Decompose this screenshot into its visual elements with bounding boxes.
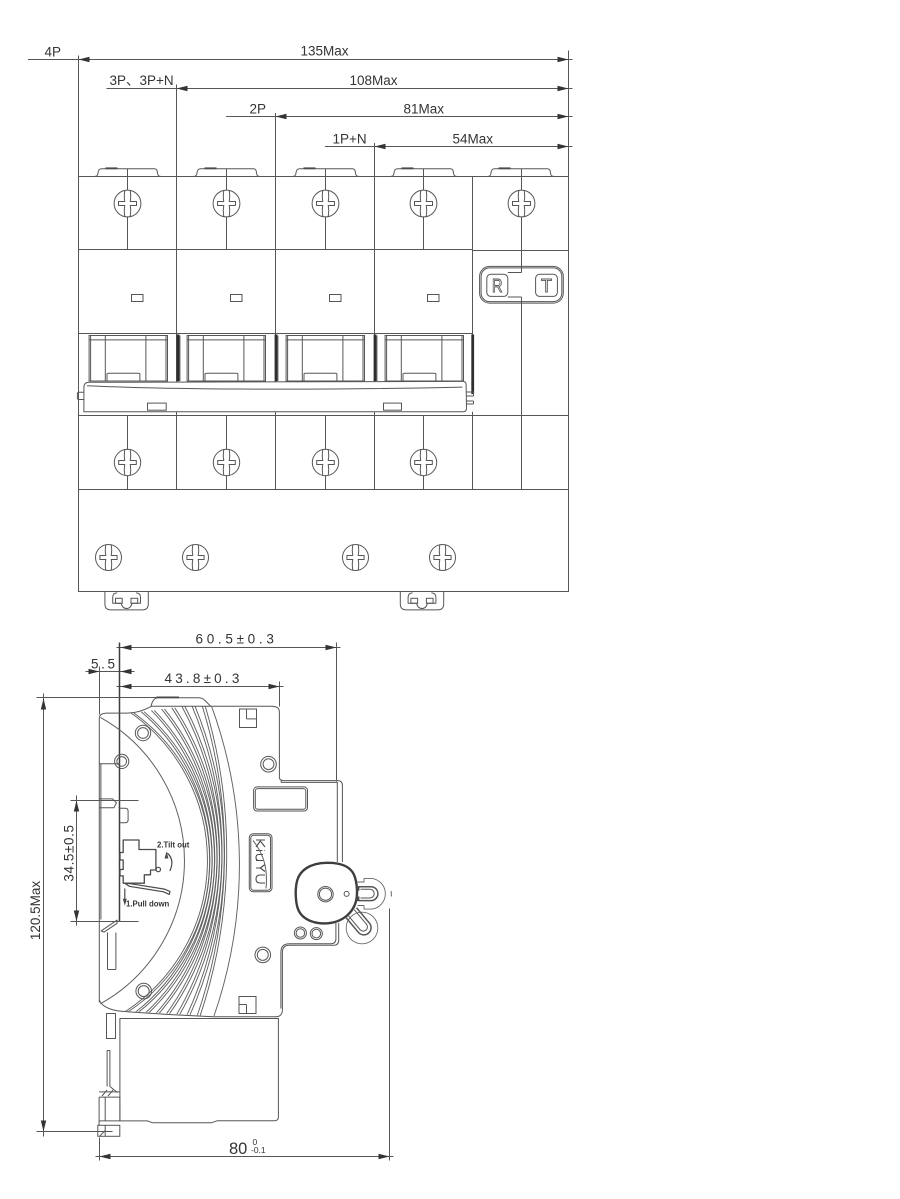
svg-text:120.5Max: 120.5Max bbox=[28, 881, 43, 941]
svg-text:4P: 4P bbox=[45, 45, 62, 60]
svg-text:108Max: 108Max bbox=[350, 73, 398, 88]
svg-text:3P、3P+N: 3P、3P+N bbox=[110, 73, 174, 88]
svg-text:81Max: 81Max bbox=[404, 102, 445, 117]
svg-text:54Max: 54Max bbox=[453, 132, 494, 147]
svg-text:60.5±0.3: 60.5±0.3 bbox=[196, 632, 278, 647]
svg-text:135Max: 135Max bbox=[301, 44, 349, 59]
svg-text:-0.1: -0.1 bbox=[251, 1145, 266, 1155]
svg-text:2.Tilt out: 2.Tilt out bbox=[157, 841, 190, 850]
svg-text:1.Pull down: 1.Pull down bbox=[126, 900, 170, 909]
svg-text:R: R bbox=[492, 275, 503, 296]
svg-text:T: T bbox=[541, 275, 552, 296]
svg-text:80: 80 bbox=[229, 1140, 247, 1158]
svg-text:5.5: 5.5 bbox=[91, 657, 118, 672]
svg-text:43.8±0.3: 43.8±0.3 bbox=[165, 671, 243, 686]
svg-text:34.5±0.5: 34.5±0.5 bbox=[61, 824, 76, 881]
svg-text:2P: 2P bbox=[250, 102, 267, 117]
svg-text:1P+N: 1P+N bbox=[333, 132, 367, 147]
